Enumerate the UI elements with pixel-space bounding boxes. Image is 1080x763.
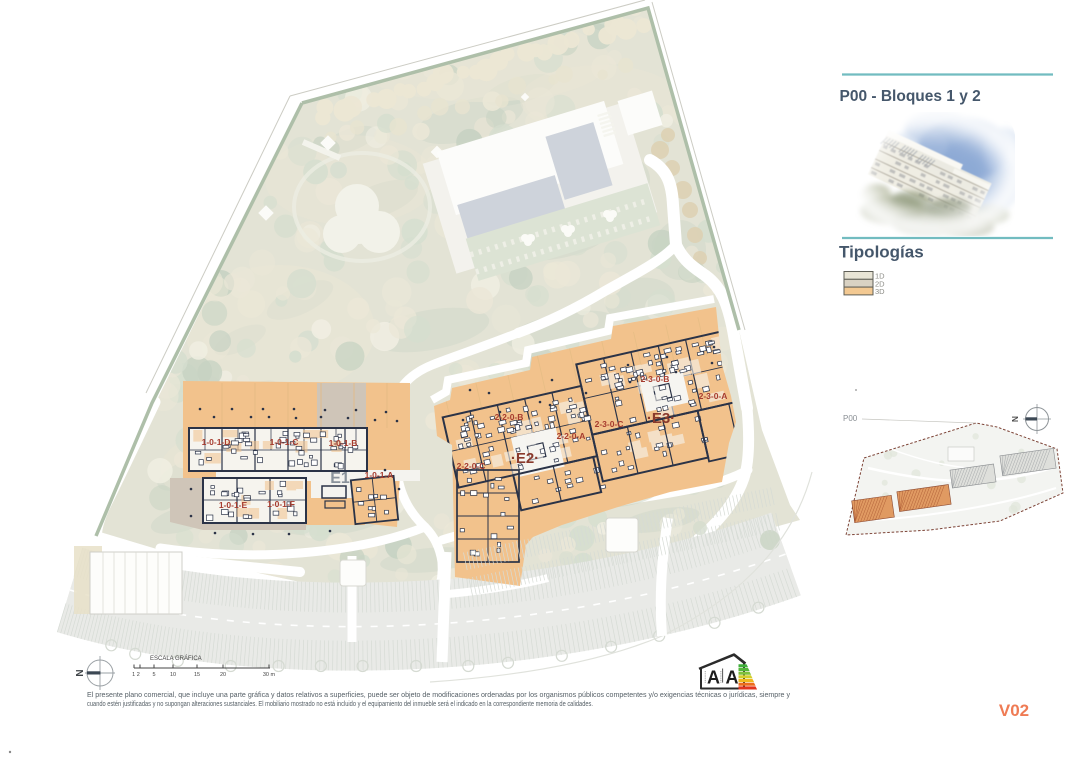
svg-text:1-0-1-E: 1-0-1-E	[219, 500, 248, 510]
svg-text:15: 15	[194, 672, 200, 678]
svg-text:5: 5	[152, 672, 155, 678]
svg-text:1-0-1-C: 1-0-1-C	[270, 437, 299, 447]
svg-text:·E2·: ·E2·	[511, 450, 539, 467]
svg-text:2-3-0-A: 2-3-0-A	[699, 391, 728, 401]
svg-text:1 2: 1 2	[132, 672, 140, 678]
svg-text:N: N	[1010, 416, 1020, 422]
svg-text:P00 - Bloques 1 y 2: P00 - Bloques 1 y 2	[840, 88, 981, 105]
svg-text:3D: 3D	[875, 287, 885, 296]
svg-text:2-2-0-A: 2-2-0-A	[557, 431, 586, 441]
svg-text:2-3-0-B: 2-3-0-B	[641, 374, 670, 384]
svg-text:V02: V02	[999, 701, 1029, 720]
svg-text:1-0-1-A: 1-0-1-A	[365, 470, 394, 480]
svg-text:ESCALA GRÁFICA: ESCALA GRÁFICA	[150, 655, 202, 662]
svg-text:2-3-0-C: 2-3-0-C	[595, 419, 624, 429]
svg-text:1-0-1-B: 1-0-1-B	[329, 438, 358, 448]
svg-text:20: 20	[220, 672, 226, 678]
svg-text:A: A	[726, 667, 739, 687]
svg-text:30 m: 30 m	[263, 672, 276, 678]
svg-text:10: 10	[170, 672, 176, 678]
svg-text:·E3·: ·E3·	[647, 410, 675, 427]
svg-text:1-0-1-D: 1-0-1-D	[202, 437, 231, 447]
svg-text:E1: E1	[330, 470, 350, 487]
svg-text:2-2-0-C: 2-2-0-C	[457, 461, 486, 471]
svg-text:cuando estén justificadas y no: cuando estén justificadas y no supongan …	[87, 701, 593, 708]
svg-text:1-0-1-F: 1-0-1-F	[267, 499, 295, 509]
svg-text:N: N	[75, 669, 86, 676]
svg-text:2-2-0-B: 2-2-0-B	[495, 412, 524, 422]
svg-text:A: A	[707, 667, 720, 687]
svg-text:Tipologías: Tipologías	[839, 243, 924, 262]
svg-text:P00: P00	[843, 414, 858, 423]
svg-text:El presente plano comercial, q: El presente plano comercial, que incluye…	[87, 692, 790, 699]
